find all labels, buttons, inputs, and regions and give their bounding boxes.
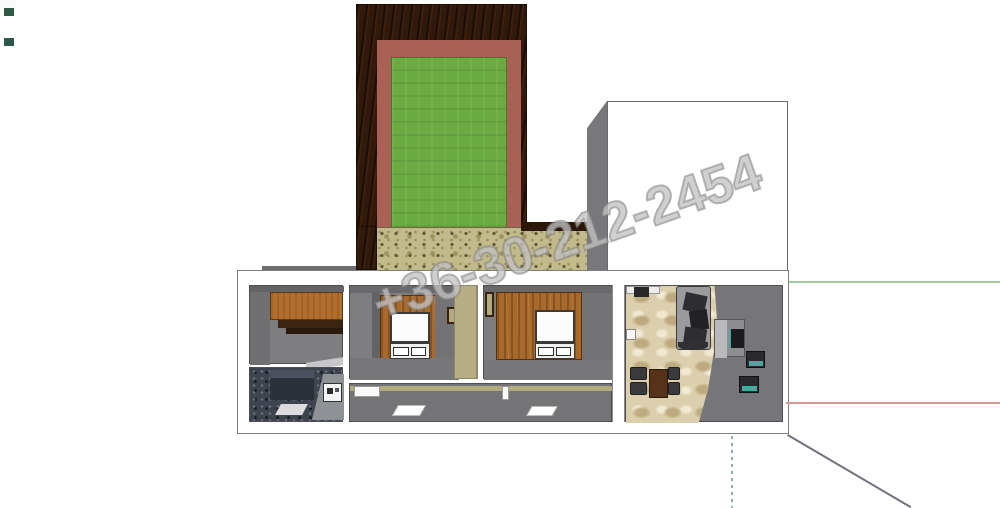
- dining-table: [649, 369, 668, 398]
- bed2-duvet: [535, 310, 575, 343]
- model-viewport[interactable]: +36-30-212-2454: [0, 0, 1000, 508]
- bed-2: [535, 310, 575, 359]
- utility-room: [249, 367, 343, 422]
- living-partition-wall: [612, 285, 625, 422]
- gray-guide-line: [787, 434, 911, 508]
- media-frame-1-screen: [749, 361, 763, 366]
- subfloor-object-2: [502, 386, 509, 400]
- bed1-headboard: [390, 343, 430, 359]
- bedroom1-floor: [350, 358, 459, 380]
- axis-tick-mark-bottom: [4, 38, 14, 46]
- bed2-headboard: [535, 343, 575, 359]
- bedroom-2: [483, 285, 612, 379]
- green-axis-line: [789, 281, 1000, 283]
- kitchen-room: [249, 285, 343, 364]
- media-frame-2: [739, 376, 759, 393]
- wood-frame-left-post: [356, 226, 377, 270]
- subfloor-object-1: [354, 386, 380, 397]
- washing-machine-door: [327, 388, 333, 394]
- bedroom2-floor: [484, 360, 613, 380]
- section-box: [237, 270, 789, 434]
- bedroom2-right-wall: [582, 293, 613, 365]
- green-panel: [391, 57, 507, 228]
- utility-cabinet: [270, 370, 314, 400]
- subfloor-tan-band: [350, 386, 613, 391]
- sofa-front-shadow: [678, 342, 708, 350]
- tv-screen: [729, 329, 744, 348]
- utility-doormat: [275, 404, 308, 415]
- dining-chair-2: [630, 382, 647, 395]
- living-speaker: [634, 287, 649, 297]
- dining-chair-1: [630, 367, 647, 380]
- living-door-panel: [626, 329, 636, 340]
- media-frame-2-screen: [742, 386, 757, 391]
- tv-wall-unit: [714, 319, 745, 357]
- washing-machine: [323, 383, 342, 402]
- kitchen-left-wall: [250, 286, 270, 365]
- tv-unit-frame: [715, 320, 727, 358]
- dining-chair-3: [668, 367, 680, 380]
- axis-tick-mark-top: [4, 8, 14, 16]
- living-room: [625, 285, 783, 422]
- kitchen-cabinet-shadow: [286, 328, 343, 334]
- teal-dotted-axis-line: [731, 436, 733, 508]
- subfloor-strip: [349, 383, 612, 422]
- bed2-pillow-left: [538, 347, 554, 356]
- kitchen-cabinet-underside: [278, 320, 343, 328]
- dining-chair-4: [668, 382, 680, 395]
- kitchen-upper-cabinet: [270, 292, 343, 320]
- doormat-1: [392, 405, 426, 416]
- washing-machine-panel: [335, 388, 339, 392]
- red-axis-line: [786, 402, 1000, 404]
- bed1-pillow-right: [411, 347, 426, 356]
- bed2-pillow-right: [556, 347, 571, 356]
- media-frame-1: [746, 351, 765, 368]
- doormat-2: [526, 406, 558, 416]
- bed1-pillow-left: [393, 347, 409, 356]
